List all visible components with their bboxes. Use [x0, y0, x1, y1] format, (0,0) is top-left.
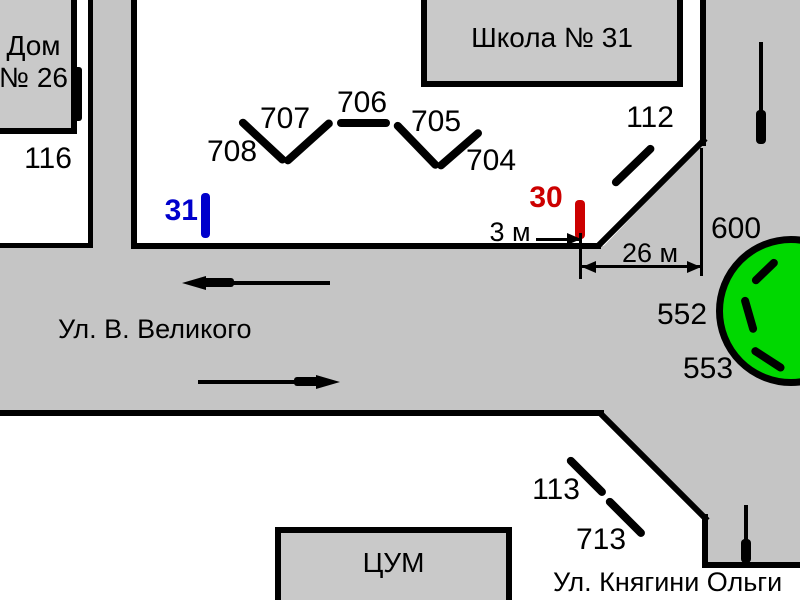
dim-26m-label: 26 м [612, 240, 688, 267]
pole-top-base-icon [756, 110, 766, 144]
building-school-31-label: Школа № 31 [471, 22, 633, 54]
dim-26m-arrow-left-icon [582, 261, 596, 273]
mark-704-label: 704 [461, 146, 521, 176]
traffic-arrow-west-tail [230, 281, 330, 285]
building-house-26-label-line1: Дом [6, 30, 60, 62]
mark-707-label: 707 [255, 104, 315, 134]
traffic-arrow-east-icon [316, 375, 340, 389]
mark-553-label: 553 [678, 354, 738, 384]
mark-600-label: 600 [706, 214, 766, 244]
building-house-26-label-line2: № 26 [0, 62, 68, 94]
street-vertical-left [92, 0, 131, 252]
mark-706-label: 706 [332, 88, 392, 118]
building-tsum-label: ЦУМ [363, 547, 425, 579]
block-c-right-edge [702, 514, 708, 567]
building-house-26: Дом № 26 [0, 0, 77, 134]
point-30-label: 30 [522, 183, 570, 213]
dim-3m-label: 3 м [482, 219, 538, 246]
street-velykoho-label: Ул. В. Великого [58, 316, 251, 343]
pole-bottom-icon [744, 505, 748, 541]
building-tsum: ЦУМ [275, 527, 512, 600]
map-canvas: Дом № 26 Школа № 31 ЦУМ 31 30 3 м 26 м [0, 0, 800, 600]
dim-ext-right [700, 148, 703, 276]
street-knyahyni-olhy-label: Ул. Княгини Ольги [553, 569, 782, 596]
mark-706-icon [337, 119, 390, 127]
mark-116-label: 116 [18, 144, 78, 174]
block-b-left-edge [131, 0, 137, 248]
traffic-arrow-east-tail [198, 380, 300, 384]
pole-bottom-base-icon [741, 539, 751, 563]
building-school-31: Школа № 31 [421, 0, 683, 87]
mark-116-icon [74, 67, 82, 121]
mark-705-label: 705 [406, 107, 466, 137]
mark-112-label: 112 [620, 103, 680, 133]
mark-552-label: 552 [652, 300, 712, 330]
mark-713-label: 713 [571, 525, 631, 555]
dim-26m-arrow-right-icon [687, 261, 701, 273]
mark-708-label: 708 [202, 137, 262, 167]
mark-112-icon [610, 143, 656, 188]
block-a-bottom-edge [0, 243, 93, 248]
block-c-top-edge [0, 410, 604, 416]
block-a-right-edge [88, 0, 93, 248]
mark-113-label: 113 [526, 475, 586, 505]
point-31-marker [201, 193, 210, 238]
pole-top-icon [759, 42, 763, 112]
block-b-right-edge [700, 0, 706, 146]
point-31-label: 31 [148, 196, 198, 226]
